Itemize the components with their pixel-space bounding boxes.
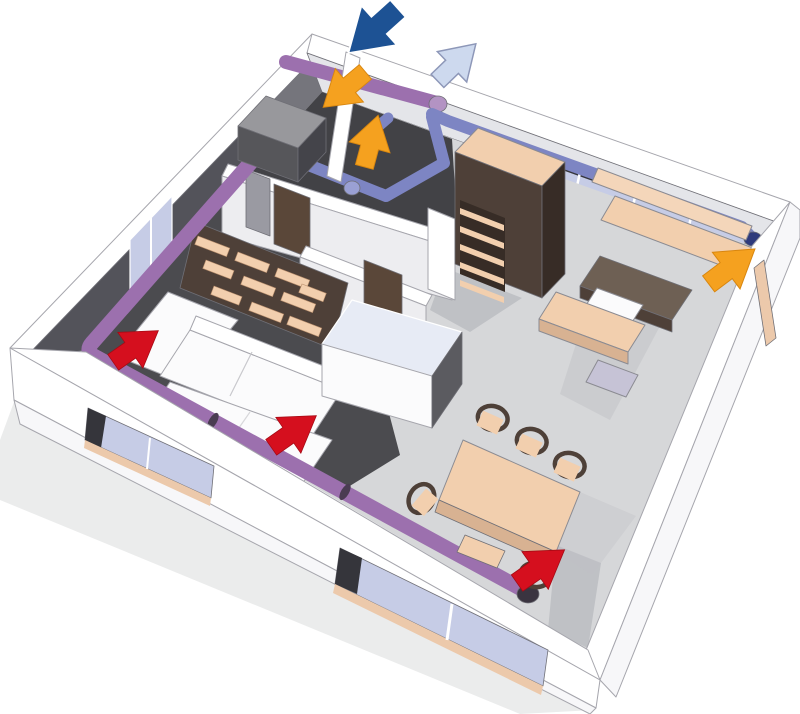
hall-column [428,208,455,300]
apartment-ventilation-diagram [0,0,800,714]
wardrobe-side [542,162,565,298]
blue-duct-vent-outlet [344,181,360,195]
gray-panel [246,170,270,236]
diagram-canvas [0,0,800,714]
